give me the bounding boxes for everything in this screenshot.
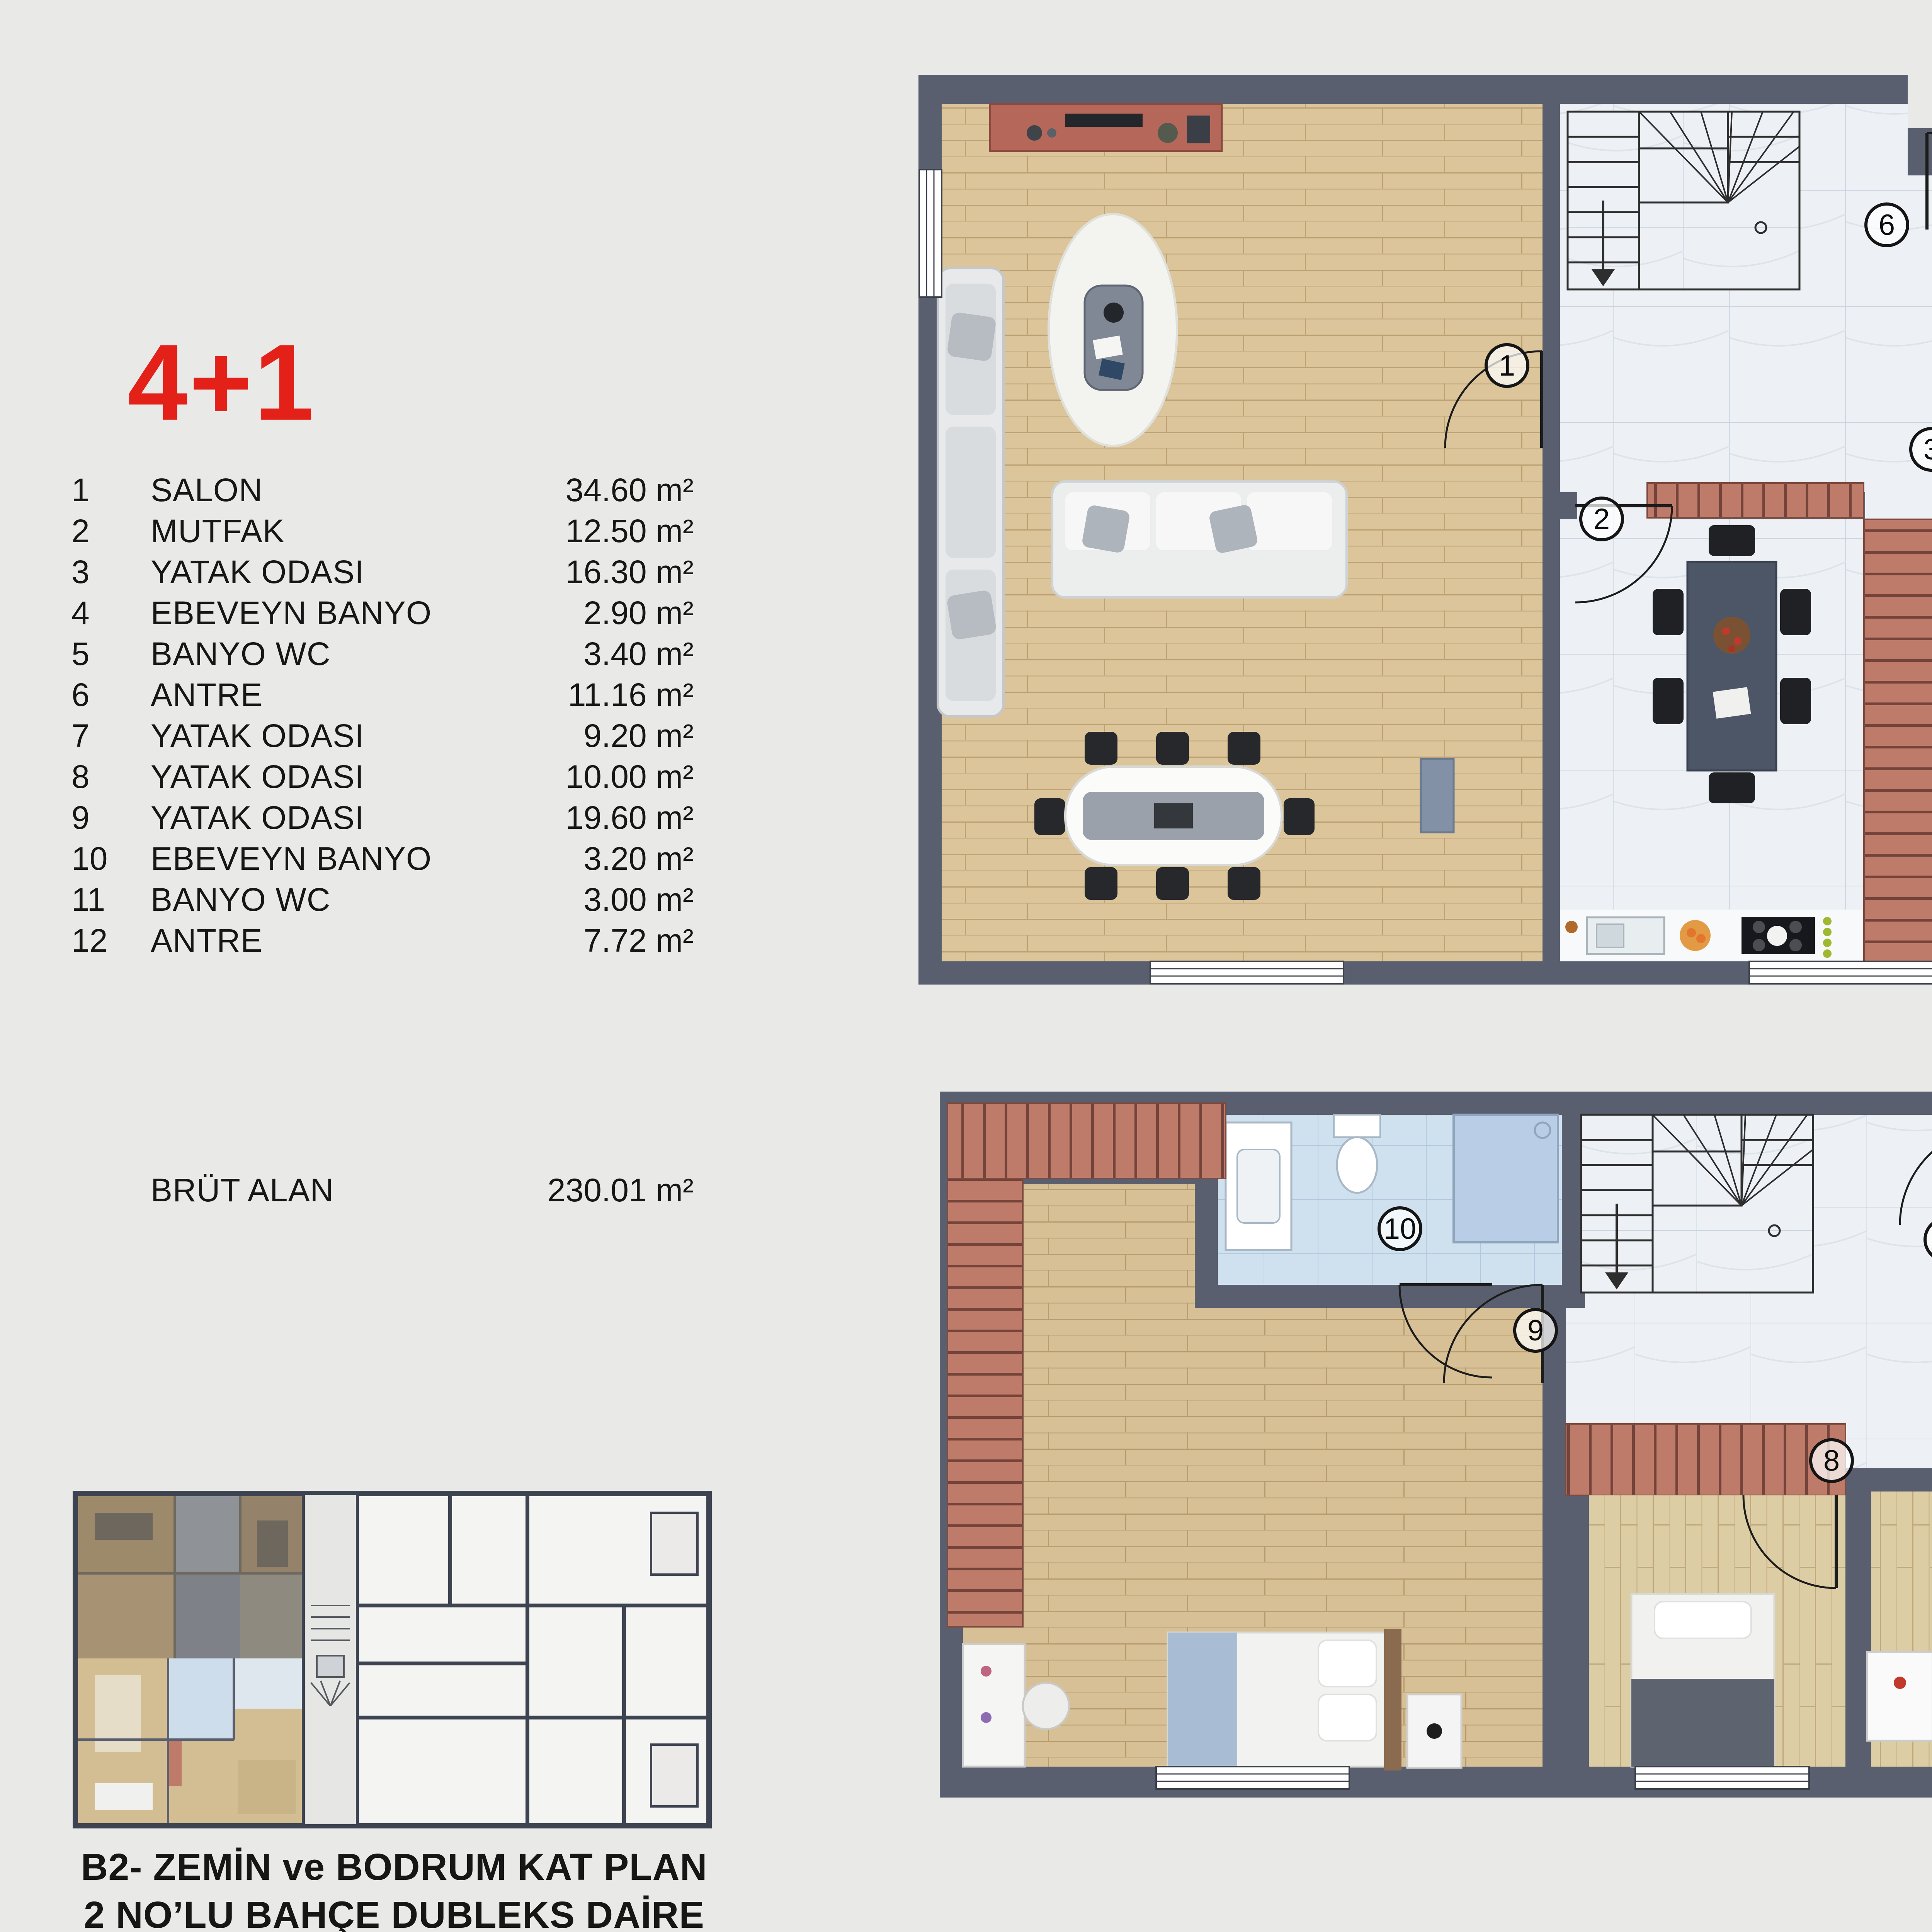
legend-room-area: 9.20 m² (454, 717, 694, 755)
legend-room-area: 12.50 m² (454, 512, 694, 550)
legend-room-name: EBEVEYN BANYO (151, 840, 454, 878)
legend-room-number: 8 (71, 758, 151, 796)
legend-room-number: 1 (71, 471, 151, 509)
legend-room-name: BANYO WC (151, 881, 454, 918)
legend-row: 11BANYO WC3.00 m² (71, 879, 694, 920)
room-marker-8: 8 (1809, 1438, 1854, 1483)
legend-row: 4EBEVEYN BANYO2.90 m² (71, 592, 694, 633)
legend-room-number: 5 (71, 635, 151, 673)
legend-room-name: BANYO WC (151, 635, 454, 673)
legend-row: 1SALON34.60 m² (71, 469, 694, 510)
legend-room-number: 3 (71, 553, 151, 591)
legend-room-area: 7.72 m² (454, 922, 694, 959)
legend-room-area: 2.90 m² (454, 594, 694, 632)
gross-area-row: BRÜT ALAN 230.01 m² (71, 1167, 694, 1213)
unit-highlighted (78, 1658, 303, 1823)
lower-floor-plan: 789101112 (940, 1092, 1932, 1798)
room-marker-9: 9 (1513, 1308, 1558, 1353)
legend-room-name: YATAK ODASI (151, 717, 454, 755)
legend-row: 12ANTRE7.72 m² (71, 920, 694, 961)
legend-room-area: 34.60 m² (454, 471, 694, 509)
legend-room-number: 10 (71, 840, 151, 878)
lower-room-markers: 789101112 (940, 1092, 1932, 1798)
building-overview (71, 1490, 713, 1837)
legend-room-area: 10.00 m² (454, 758, 694, 796)
gross-area-value: 230.01 m² (454, 1172, 694, 1209)
plan-caption-line1: B2- ZEMİN ve BODRUM KAT PLAN (62, 1843, 726, 1891)
room-legend: 1SALON34.60 m²2MUTFAK12.50 m²3YATAK ODAS… (71, 469, 694, 961)
legend-room-name: ANTRE (151, 676, 454, 714)
room-marker-10: 10 (1378, 1206, 1422, 1251)
legend-room-name: EBEVEYN BANYO (151, 594, 454, 632)
legend-row: 9YATAK ODASI19.60 m² (71, 797, 694, 838)
apartment-type-title: 4+1 (128, 321, 316, 445)
room-marker-12: 12 (1923, 1217, 1932, 1262)
room-marker-2: 2 (1579, 497, 1624, 541)
legend-room-number: 7 (71, 717, 151, 755)
legend-room-area: 11.16 m² (454, 676, 694, 714)
unit-dimmed (78, 1496, 303, 1658)
legend-row: 8YATAK ODASI10.00 m² (71, 756, 694, 797)
legend-room-area: 19.60 m² (454, 799, 694, 837)
legend-room-name: YATAK ODASI (151, 799, 454, 837)
plan-caption: B2- ZEMİN ve BODRUM KAT PLAN 2 NO’LU BAH… (62, 1843, 726, 1932)
legend-room-name: YATAK ODASI (151, 758, 454, 796)
room-marker-1: 1 (1485, 343, 1529, 388)
legend-room-number: 6 (71, 676, 151, 714)
legend-row: 5BANYO WC3.40 m² (71, 633, 694, 674)
legend-row: 3YATAK ODASI16.30 m² (71, 551, 694, 592)
legend-room-area: 3.20 m² (454, 840, 694, 878)
corridor (303, 1493, 357, 1826)
upper-room-markers: 123456 (918, 75, 1932, 985)
room-marker-6: 6 (1864, 202, 1909, 247)
plan-caption-line2: 2 NO’LU BAHÇE DUBLEKS DAİRE (62, 1891, 726, 1932)
legend-room-area: 3.40 m² (454, 635, 694, 673)
room-marker-3: 3 (1909, 427, 1932, 472)
legend-room-number: 11 (71, 881, 151, 918)
legend-row: 6ANTRE11.16 m² (71, 674, 694, 715)
legend-room-name: SALON (151, 471, 454, 509)
legend-room-area: 3.00 m² (454, 881, 694, 918)
legend-row: 7YATAK ODASI9.20 m² (71, 715, 694, 756)
legend-room-name: MUTFAK (151, 512, 454, 550)
legend-room-number: 4 (71, 594, 151, 632)
legend-room-area: 16.30 m² (454, 553, 694, 591)
gross-area-label: BRÜT ALAN (151, 1172, 454, 1209)
upper-floor-plan: 123456 (918, 75, 1932, 985)
legend-room-number: 9 (71, 799, 151, 837)
legend-room-name: YATAK ODASI (151, 553, 454, 591)
floorplan-sheet: 4+1 1SALON34.60 m²2MUTFAK12.50 m²3YATAK … (0, 0, 1932, 1932)
building-overview-svg (71, 1490, 713, 1837)
legend-room-number: 12 (71, 922, 151, 959)
legend-row: 2MUTFAK12.50 m² (71, 510, 694, 551)
legend-row: 10EBEVEYN BANYO3.20 m² (71, 838, 694, 879)
legend-room-number: 2 (71, 512, 151, 550)
legend-room-name: ANTRE (151, 922, 454, 959)
